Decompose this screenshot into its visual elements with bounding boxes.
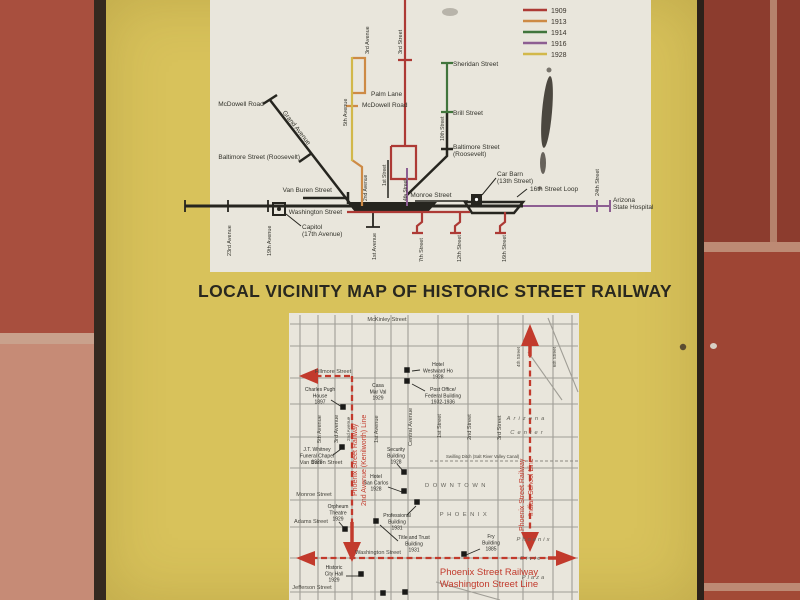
building-square	[401, 488, 407, 494]
label-arizona: Arizona	[506, 416, 548, 422]
label-4th-street: 4th Street	[516, 346, 521, 367]
building-square	[339, 444, 345, 450]
label-7th-street: 7th Street	[419, 238, 425, 262]
building-square	[404, 378, 410, 384]
label-1st-street: 1st Street	[382, 164, 388, 186]
label-3rd-street: 3rd Street	[398, 29, 404, 54]
label-10th-street: 10th Street	[440, 116, 446, 141]
building-square	[404, 367, 410, 373]
label-swilling-ditch-salt-river-valley-canal: Swilling Ditch (Salt River Valley Canal)	[446, 454, 520, 459]
legend-year-1913: 1913	[551, 19, 567, 26]
label-brill-street: Brill Street	[453, 110, 483, 117]
stain	[680, 344, 686, 350]
building-square	[461, 551, 467, 557]
label-washington-street: Washington Street	[355, 550, 401, 556]
label-19th-avenue: 19th Avenue	[267, 226, 273, 256]
label-downtown: DOWNTOWN	[425, 483, 489, 489]
legend-year-1916: 1916	[551, 41, 567, 48]
label-12th-street: 12th Street	[457, 235, 463, 262]
legend-year-1909: 1909	[551, 8, 567, 15]
label-1st-avenue: 1st Avenue	[372, 233, 378, 260]
legend-year-1914: 1914	[551, 30, 567, 37]
building-square	[373, 518, 379, 524]
legend-year-1928: 1928	[551, 52, 567, 59]
label-24th-street: 24th Street	[595, 169, 601, 196]
top-map-background	[210, 0, 651, 272]
label-23rd-avenue: 23rd Avenue	[227, 225, 233, 256]
building-square	[401, 469, 407, 475]
building-square	[380, 590, 386, 596]
label-3rd-avenue: 3rd Avenue	[365, 26, 371, 54]
label-2nd-avenue: 2nd Avenue	[346, 416, 351, 441]
label-16th-street-loop: 16th Street Loop	[530, 186, 578, 193]
label-3rd-street: 3rd Street	[497, 415, 503, 440]
label-phoenix-street-railway: Phoenix Street Railway	[440, 567, 538, 578]
label-monroe-street: Monroe Street	[296, 492, 332, 498]
label-mcdowell-road: McDowell Road	[218, 101, 264, 108]
label-2nd-avenue: 2nd Avenue	[363, 174, 369, 201]
label-6th-street: 6th Street	[552, 346, 557, 367]
bottom-map: McKinley StreetFillmore StreetVan Buren …	[289, 313, 686, 600]
label-2nd-avenue-kenilworth-line: 2nd Avenue (Kenilworth) Line	[361, 415, 368, 506]
label-washington-street: Washington Street	[289, 209, 342, 216]
label-indian-school-line: Indian School Line	[528, 458, 535, 516]
building-square	[402, 589, 408, 595]
building-square	[414, 499, 420, 505]
label-5th-avenue: 5th Avenue	[343, 99, 349, 126]
label-phoenix: Phoenix	[517, 537, 552, 543]
photo-of-railway-sign: 19091913191419161928 McDowell RoadGrand …	[0, 0, 800, 600]
label-jefferson-street: Jefferson Street	[292, 585, 332, 591]
car-barn-dot	[475, 198, 478, 201]
label-phoenix: PHOENIX	[440, 512, 491, 518]
label-civic: Civic	[520, 556, 543, 562]
top-map: 19091913191419161928 McDowell RoadGrand …	[185, 0, 654, 272]
label-5th-avenue: 5th Avenue	[317, 415, 323, 443]
label-van-buren-street: Van Buren Street	[283, 187, 333, 194]
label-phoenix-street-railway: Phoenix Street Railway	[352, 423, 359, 496]
washington-thick-segment	[347, 202, 437, 212]
building-square	[342, 526, 348, 532]
label-phoenix-street-railway: Phoenix Street Railway	[519, 458, 526, 531]
label-monroe-street: Monroe Street	[410, 192, 451, 199]
label-mckinley-street: McKinley Street	[367, 317, 407, 323]
label-1st-street: 1st Street	[437, 414, 443, 438]
label-baltimore-street-roosevelt: Baltimore Street (Roosevelt)	[218, 154, 300, 161]
label-adams-street: Adams Street	[294, 519, 328, 525]
capitol-dot	[277, 207, 281, 211]
label-4th-street: 4th Street	[403, 179, 409, 201]
label-central-avenue: Central Avenue	[408, 408, 414, 446]
label-fillmore-street: Fillmore Street	[315, 369, 352, 375]
label-palm-lane: Palm Lane	[371, 91, 402, 98]
sign-title: LOCAL VICINITY MAP OF HISTORIC STREET RA…	[170, 281, 700, 302]
label-3rd-avenue: 3rd Avenue	[334, 415, 340, 443]
label-center: Center	[510, 430, 545, 436]
label-1st-avenue: 1st Avenue	[374, 415, 380, 443]
building-square	[358, 571, 364, 577]
label-washington-street-line: Washington Street Line	[440, 579, 538, 590]
label-sheridan-street: Sheridan Street	[453, 61, 498, 68]
building-square	[340, 404, 346, 410]
label-16th-street: 16th Street	[502, 235, 508, 262]
label-mcdowell-road: McDowell Road	[362, 102, 408, 109]
label-2nd-street: 2nd Street	[467, 414, 473, 440]
